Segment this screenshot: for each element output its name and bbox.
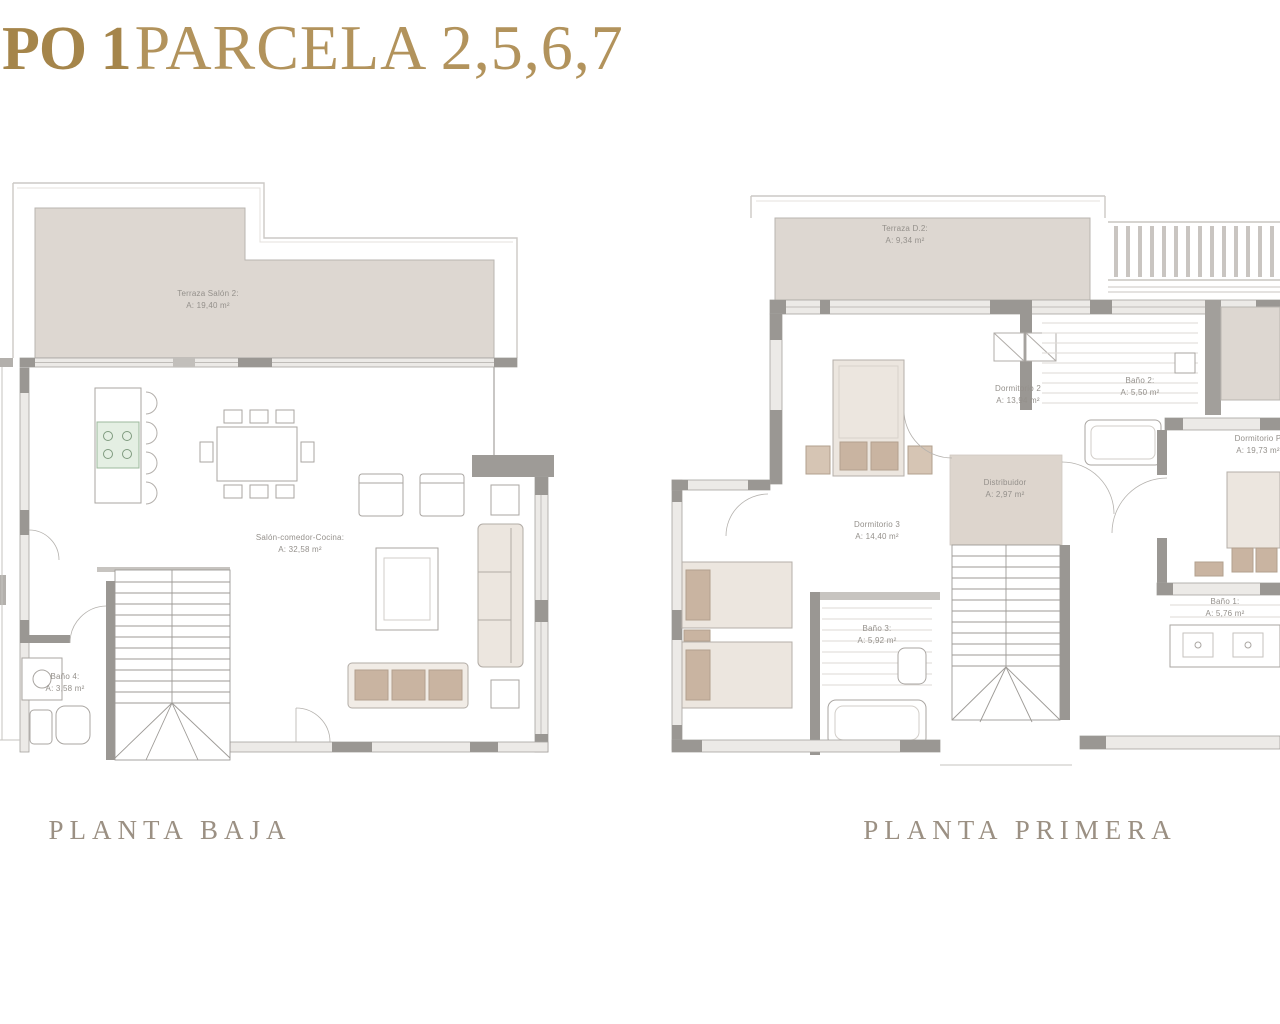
room-name: Dormitorio P [1173, 433, 1280, 445]
room-area: A: 5,92 m² [792, 635, 962, 647]
plan-title-planta-primera: PLANTA PRIMERA [855, 815, 1185, 846]
room-label-bano1: Baño 1: A: 5,76 m² [1140, 596, 1280, 621]
toilet [898, 648, 926, 684]
staircase [952, 545, 1070, 722]
room-area: A: 14,40 m² [792, 531, 962, 543]
armchairs [359, 474, 464, 516]
bathroom3 [810, 592, 940, 755]
room-label-bano4: Baño 4: A: 3,58 m² [0, 671, 150, 696]
room-name: Salón-comedor-Cocina: [215, 532, 385, 544]
pergola-slats [1108, 222, 1280, 292]
bar-stools [146, 392, 157, 504]
sofa-horizontal [348, 663, 468, 708]
room-area: A: 19,40 m² [123, 300, 293, 312]
room-name: Baño 4: [0, 671, 150, 683]
room-label-bano3: Baño 3: A: 5,92 m² [792, 623, 962, 648]
bottom-walls [672, 736, 1280, 765]
room-name: Terraza D.2: [820, 223, 990, 235]
page-title: PO 1 PARCELA 2,5,6,7 [2, 16, 624, 80]
sofa-vertical [478, 524, 523, 667]
floorplan-page: PO 1 PARCELA 2,5,6,7 [0, 0, 1280, 1024]
room-name: Terraza Salón 2: [123, 288, 293, 300]
room-label-distribuidor: Distribuidor A: 2,97 m² [920, 477, 1090, 502]
room-label-salon-comedor: Salón-comedor-Cocina: A: 32,58 m² [215, 532, 385, 557]
room-area: A: 3,58 m² [0, 683, 150, 695]
staircase [115, 570, 230, 760]
room-area: A: 9,34 m² [820, 235, 990, 247]
room-name: Baño 2: [1055, 375, 1225, 387]
bedroom3 [672, 480, 792, 750]
coffee-table [376, 548, 438, 630]
dining-table [200, 410, 314, 498]
room-label-dormitorio-p: Dormitorio P A: 19,73 m² [1173, 433, 1280, 458]
facade-wall [20, 358, 517, 367]
nightstand [684, 630, 710, 641]
cooktop [97, 422, 139, 468]
plan-title-planta-baja: PLANTA BAJA [30, 815, 310, 846]
room-area: A: 5,76 m² [1140, 608, 1280, 620]
dresser [1195, 562, 1223, 576]
kitchen-island [95, 388, 141, 503]
room-name: Baño 1: [1140, 596, 1280, 608]
room-label-bano2: Baño 2: A: 5,50 m² [1055, 375, 1225, 400]
page-title-prefix: PO 1 [2, 15, 131, 83]
room-label-dormitorio3: Dormitorio 3 A: 14,40 m² [792, 519, 962, 544]
room-name: Baño 3: [792, 623, 962, 635]
room-name: Dormitorio 3 [792, 519, 962, 531]
facade-wall [770, 300, 1280, 314]
room-area: A: 5,50 m² [1055, 387, 1225, 399]
room-area: A: 32,58 m² [215, 544, 385, 556]
room-name: Distribuidor [920, 477, 1090, 489]
room-label-terraza-d2: Terraza D.2: A: 9,34 m² [820, 223, 990, 248]
terrace-parapet [751, 196, 1105, 218]
bathtub [1085, 420, 1161, 465]
page-title-rest: PARCELA 2,5,6,7 [135, 12, 624, 83]
room-area: A: 2,97 m² [920, 489, 1090, 501]
room-area: A: 19,73 m² [1173, 445, 1280, 457]
bathtub [828, 700, 926, 746]
shower [1175, 353, 1195, 373]
bed-double [1227, 472, 1280, 548]
room-label-terraza-salon: Terraza Salón 2: A: 19,40 m² [123, 288, 293, 313]
